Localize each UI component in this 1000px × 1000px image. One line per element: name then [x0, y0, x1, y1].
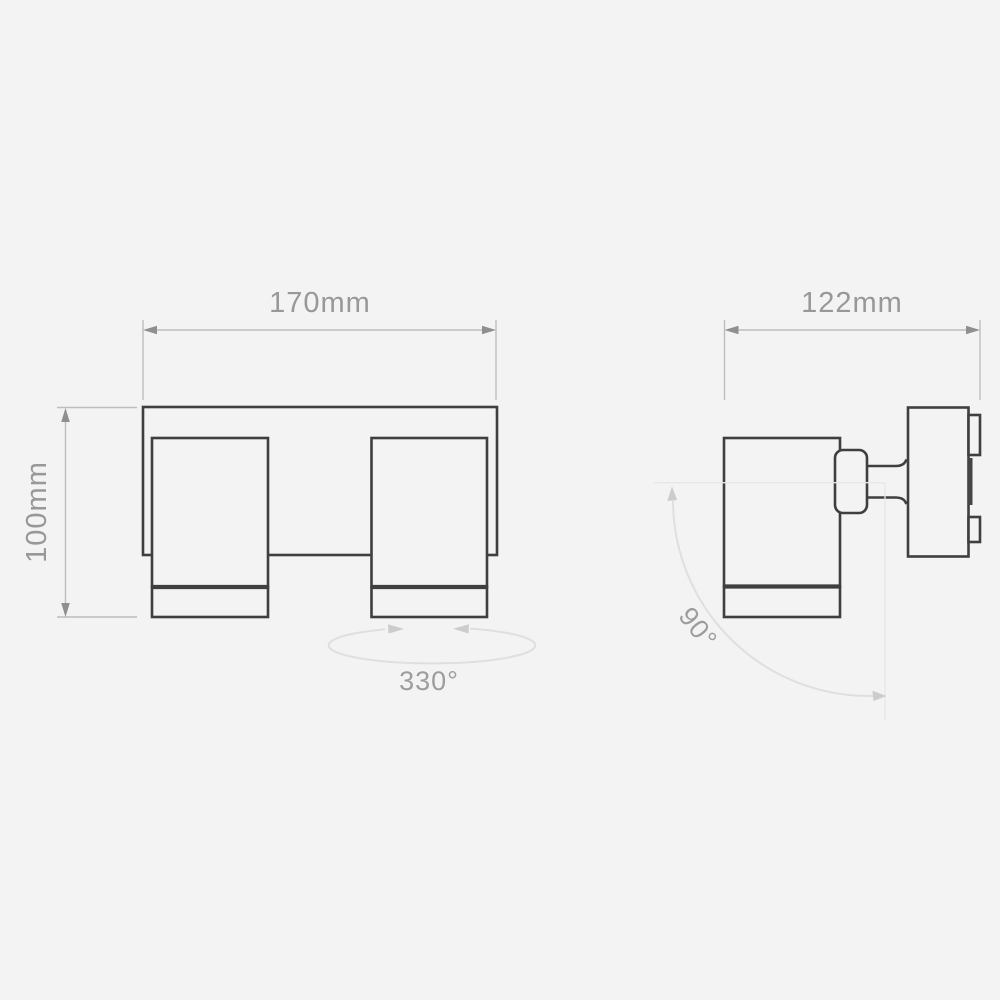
side-depth-dimension: 122mm — [725, 287, 981, 400]
side-arm-top-edge — [866, 460, 907, 467]
arrow-right-icon — [482, 326, 496, 335]
side-spot-body — [724, 438, 840, 587]
arrow-down-icon — [61, 603, 70, 617]
side-arm-bottom-edge — [866, 498, 907, 505]
front-rotation-label: 330° — [399, 666, 459, 696]
front-width-dimension: 170mm — [143, 287, 496, 400]
front-left-spot-body — [152, 438, 268, 587]
front-height-label: 100mm — [21, 461, 53, 563]
technical-drawing-canvas: 170mm 100mm 330° 122mm — [0, 0, 1000, 1000]
arrow-left-icon — [143, 326, 157, 335]
side-knuckle — [835, 450, 867, 513]
rotate-right-arrow-icon — [388, 624, 404, 633]
front-view — [143, 407, 497, 617]
side-depth-label: 122mm — [801, 287, 903, 319]
side-view — [724, 408, 980, 618]
side-wall-plate-bottom-tab — [969, 517, 981, 542]
front-right-spot-body — [372, 438, 488, 587]
arrow-right-icon — [966, 326, 980, 335]
front-height-dimension: 100mm — [21, 408, 137, 618]
side-wall-plate-mid-rib — [968, 458, 973, 505]
dimension-drawing: 170mm 100mm 330° 122mm — [0, 0, 1000, 1000]
side-wall-plate — [908, 408, 969, 557]
arc-up-arrow-icon — [667, 487, 677, 502]
front-right-spot-trim-ring — [372, 587, 488, 617]
front-width-label: 170mm — [269, 287, 371, 319]
rotate-left-arrow-icon — [453, 624, 469, 633]
arrow-up-icon — [61, 408, 70, 422]
front-left-spot-trim-ring — [152, 587, 268, 617]
side-wall-plate-top-tab — [969, 415, 981, 455]
rotation-ellipse — [329, 629, 536, 664]
arrow-left-icon — [725, 326, 739, 335]
side-spot-trim-ring — [724, 587, 840, 618]
side-tilt-label: 90° — [673, 601, 724, 654]
front-rotation-annotation: 330° — [329, 624, 536, 696]
